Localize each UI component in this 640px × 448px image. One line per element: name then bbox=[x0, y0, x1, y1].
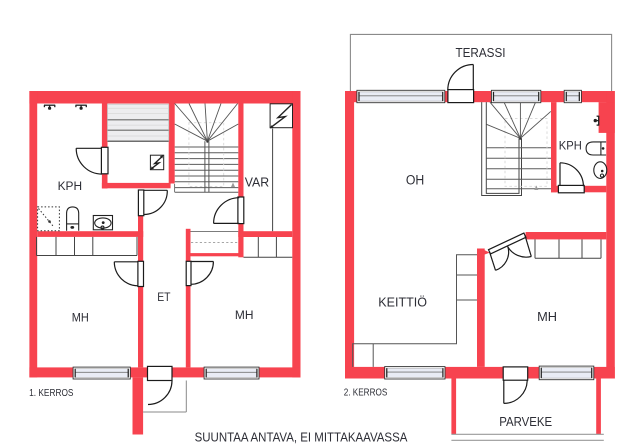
svg-text:1. KERROS: 1. KERROS bbox=[29, 388, 74, 399]
svg-text:TERASSI: TERASSI bbox=[456, 45, 506, 60]
svg-text:PARVEKE: PARVEKE bbox=[499, 415, 552, 429]
svg-text:KEITTIÖ: KEITTIÖ bbox=[378, 295, 427, 309]
svg-text:KPH: KPH bbox=[58, 181, 83, 193]
svg-text:MH: MH bbox=[72, 311, 89, 325]
svg-text:MH: MH bbox=[235, 308, 254, 322]
svg-text:MH: MH bbox=[537, 309, 557, 324]
svg-text:KPH: KPH bbox=[559, 139, 582, 153]
svg-text:2. KERROS: 2. KERROS bbox=[344, 387, 388, 398]
svg-text:SUUNTAA ANTAVA, EI MITTAKAAVAS: SUUNTAA ANTAVA, EI MITTAKAAVASSA bbox=[195, 429, 408, 444]
svg-text:OH: OH bbox=[406, 173, 424, 188]
svg-text:ET: ET bbox=[157, 290, 171, 304]
svg-text:VAR: VAR bbox=[245, 175, 269, 189]
